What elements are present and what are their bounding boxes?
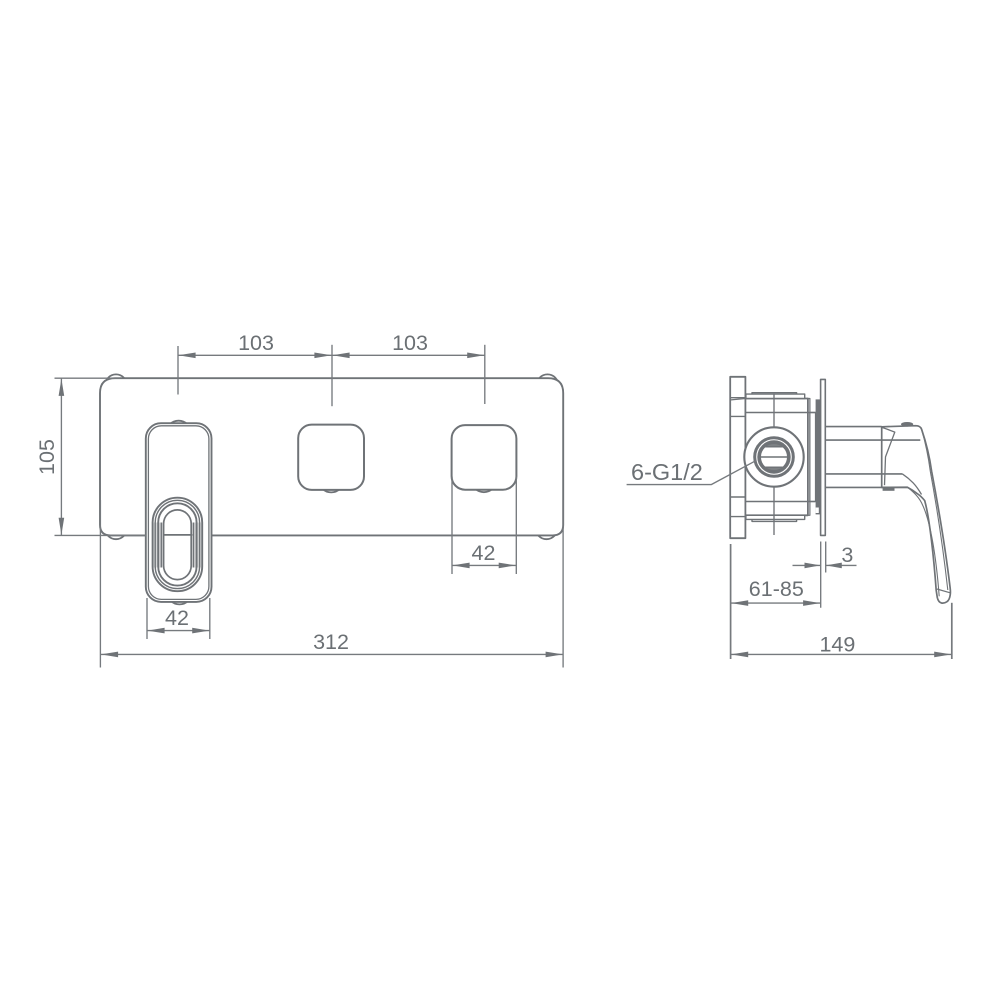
svg-text:42: 42: [165, 606, 189, 630]
svg-text:149: 149: [819, 632, 855, 656]
svg-text:61-85: 61-85: [749, 577, 804, 601]
svg-text:312: 312: [313, 630, 349, 654]
svg-text:105: 105: [35, 439, 59, 475]
svg-text:3: 3: [841, 543, 853, 567]
svg-text:103: 103: [392, 331, 428, 355]
svg-text:6-G1/2: 6-G1/2: [631, 459, 703, 485]
svg-text:103: 103: [238, 331, 274, 355]
svg-text:42: 42: [472, 541, 496, 565]
